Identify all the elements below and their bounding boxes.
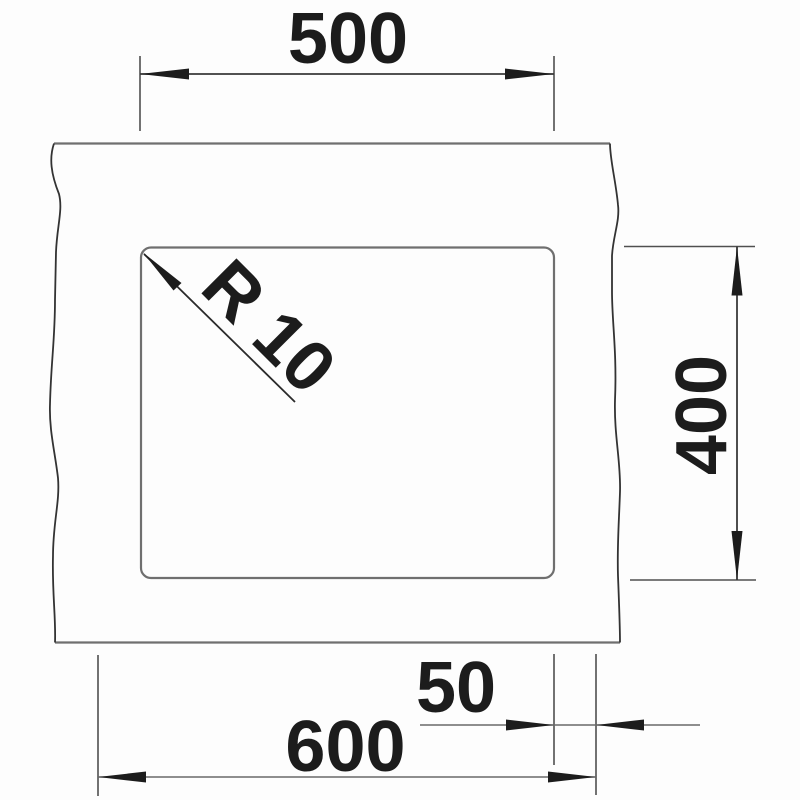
svg-text:400: 400	[662, 355, 742, 475]
svg-text:500: 500	[288, 0, 408, 79]
svg-text:50: 50	[416, 648, 496, 728]
svg-text:600: 600	[285, 707, 405, 787]
